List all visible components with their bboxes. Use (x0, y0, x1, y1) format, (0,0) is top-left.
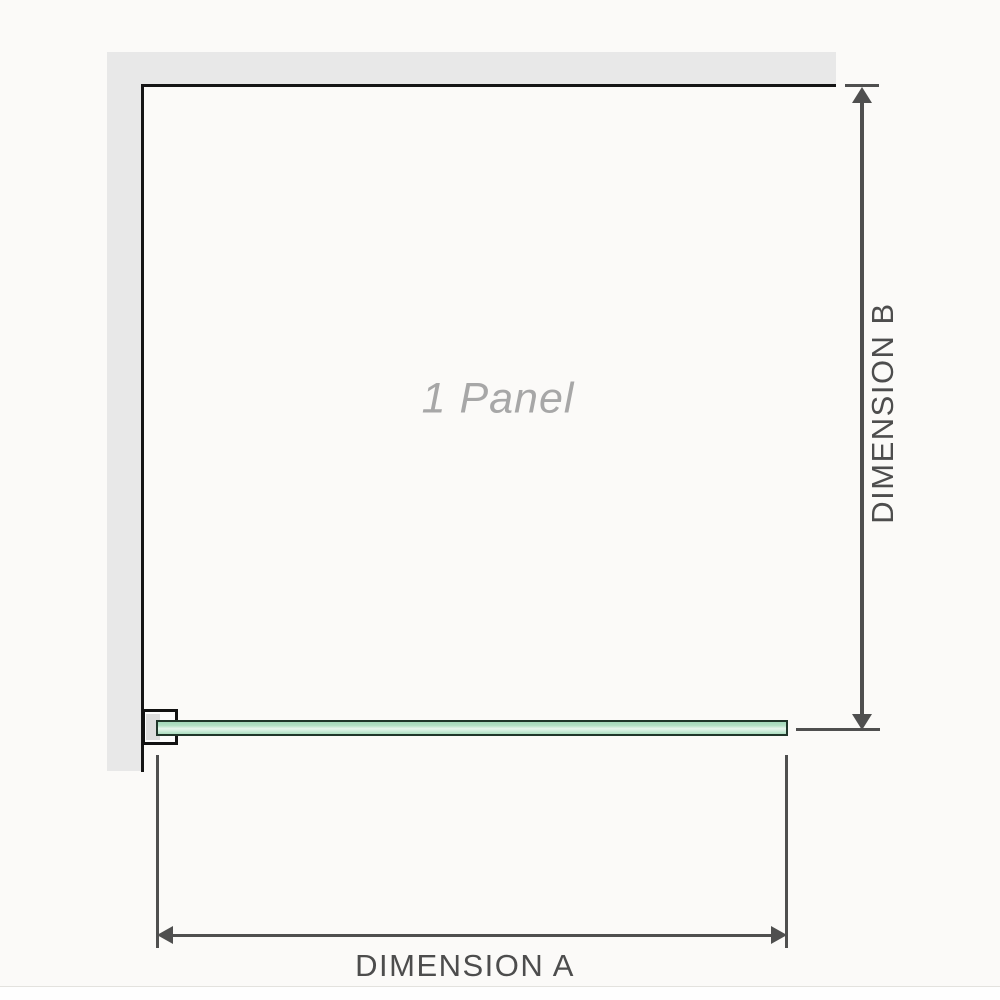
bottom-strip (0, 987, 1000, 1000)
wall-top (107, 52, 836, 84)
dim-a-extension-right (785, 755, 788, 948)
dim-a-arrow-left-icon (157, 926, 173, 944)
wall-edge-top-line (141, 84, 836, 87)
glass-panel (156, 720, 788, 736)
dim-b-arrow-up-icon (852, 87, 872, 103)
diagram-canvas: 1 Panel DIMENSION B DIMENSION A (0, 0, 1000, 1000)
dim-b-arrow-down-icon (852, 714, 872, 730)
dim-a-label: DIMENSION A (355, 948, 575, 984)
dim-b-line (860, 98, 864, 718)
panel-count-label: 1 Panel (422, 375, 575, 424)
dim-a-extension-left (156, 755, 159, 948)
wall-left (107, 52, 141, 771)
dim-a-arrow-right-icon (771, 926, 787, 944)
dim-b-label: DIMENSION B (865, 302, 901, 523)
dim-a-line (170, 934, 775, 937)
wall-edge-left-line (141, 84, 144, 772)
